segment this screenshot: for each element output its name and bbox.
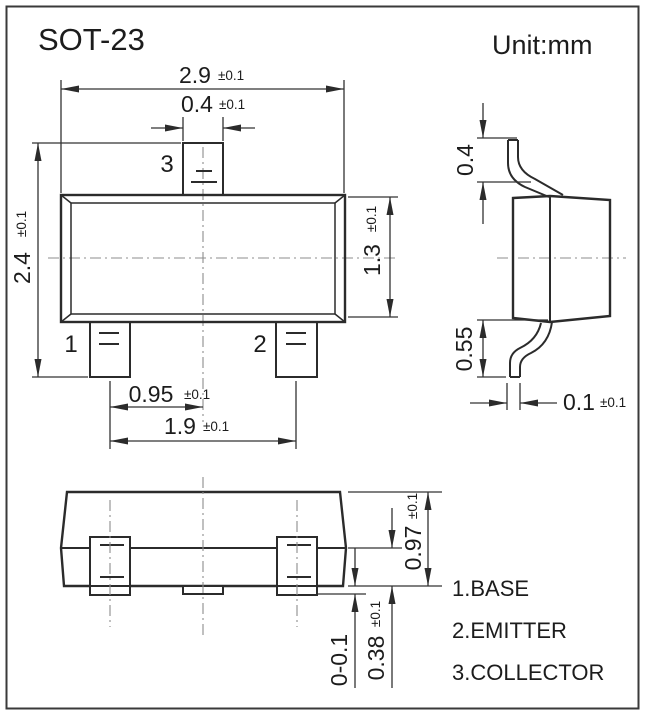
pin2-outline: [276, 322, 317, 377]
arrowhead-left: [110, 404, 128, 411]
dim-pin-span-value: 1.9: [164, 413, 196, 439]
arrowhead-right: [520, 400, 538, 407]
arrowhead-left: [489, 400, 507, 407]
unit-label: Unit:mm: [492, 30, 593, 60]
arrowhead-top: [387, 197, 394, 215]
pin1-outline: [90, 322, 130, 377]
package-body-side: [513, 196, 610, 322]
dim-body-thickness: 0.97 ±0.1: [348, 492, 442, 586]
dim-lead-profile-height-tolerance: ±0.1: [368, 601, 383, 627]
dimension-lines: [32, 143, 181, 377]
page-border: [7, 7, 639, 709]
dim-lead-bottom-height: 0.55: [451, 320, 548, 377]
dim-body-width-value: 2.9: [179, 62, 211, 88]
arrowhead-top: [425, 492, 432, 510]
pin-legend: 1.BASE 2.EMITTER 3.COLLECTOR: [452, 576, 604, 685]
body-outline: [513, 196, 610, 322]
page-title: SOT-23: [38, 22, 145, 57]
arrowhead-right: [278, 438, 296, 445]
dim-lead-profile-height: 0.38 ±0.1: [348, 508, 402, 688]
arrowhead-right: [223, 125, 241, 132]
gull-wing-lead-bottom: [510, 322, 552, 377]
gull-wing-lead-top: [508, 140, 563, 197]
dim-pin3-width-value: 0.4: [181, 91, 213, 117]
legend-item-emitter: 2.EMITTER: [452, 618, 567, 643]
pin1-number-label: 1: [64, 331, 77, 358]
arrowhead-left: [110, 438, 128, 445]
arrowhead-bottom: [389, 586, 396, 604]
sot23-outline-drawing: SOT-23 Unit:mm 3 1 2: [0, 0, 645, 715]
bottom-view: 0.97 ±0.1 0.38 ±0.1 0-0.1: [61, 477, 442, 688]
arrowhead-bottom: [480, 359, 487, 377]
dim-body-thickness-value: 0.97: [400, 526, 426, 571]
front-view: 3 1 2 2.9 ±0.1 0.4 ±0.1 2.4 ±0.1: [9, 62, 398, 449]
arrowhead-top: [389, 530, 396, 548]
side-view: 0.4 0.55 0.1 ±0.1: [451, 103, 626, 415]
pin-2-front: [276, 322, 317, 377]
arrowhead-top: [480, 120, 487, 138]
dim-body-width-tolerance: ±0.1: [218, 68, 244, 83]
arrowhead-bottom: [480, 182, 487, 200]
dim-overall-height-tolerance: ±0.1: [14, 211, 29, 237]
dim-body-height-value: 1.3: [359, 244, 385, 276]
lead-right-edge: [520, 322, 552, 377]
dim-body-thickness-tolerance: ±0.1: [405, 493, 420, 519]
drawing-page: SOT-23 Unit:mm 3 1 2: [0, 0, 645, 715]
arrowhead-top: [352, 568, 359, 586]
arrowhead-bottom: [352, 594, 359, 612]
dim-overall-height-value: 2.4: [9, 252, 35, 284]
pin1-bend-marks: [99, 333, 119, 344]
dimension-lines: [470, 383, 557, 410]
arrowhead-right: [326, 86, 344, 93]
dim-pin-span-tolerance: ±0.1: [203, 419, 229, 434]
arrowhead-bottom: [387, 299, 394, 317]
dim-pin3-width-tolerance: ±0.1: [219, 97, 245, 112]
arrowhead-bottom: [35, 359, 42, 377]
dim-body-height: 1.3 ±0.1: [348, 197, 398, 317]
dim-lead-bottom-height-value: 0.55: [451, 327, 477, 372]
dim-lead-thickness-value: 0.1: [563, 389, 595, 415]
pin-1-front: [90, 322, 130, 377]
legend-item-collector: 3.COLLECTOR: [452, 660, 604, 685]
dim-body-height-tolerance: ±0.1: [364, 206, 379, 232]
dim-lead-top-height-value: 0.4: [452, 144, 478, 176]
dim-lead-thickness-tolerance: ±0.1: [600, 395, 626, 410]
dim-overall-height: 2.4 ±0.1: [9, 143, 181, 377]
arrowhead-right: [185, 404, 203, 411]
dim-standoff: 0-0.1: [318, 548, 366, 688]
arrowhead-top: [35, 143, 42, 161]
pin2-number-label: 2: [253, 331, 266, 358]
dim-pin-pitch-value: 0.95: [129, 381, 174, 407]
arrowhead-left: [61, 86, 79, 93]
pin3-number-label: 3: [160, 151, 173, 178]
dim-pin-pitch-tolerance: ±0.1: [184, 387, 210, 402]
arrowhead-left: [165, 125, 183, 132]
dim-standoff-value: 0-0.1: [326, 634, 352, 686]
arrowhead-top: [480, 320, 487, 338]
dim-lead-profile-height-value: 0.38: [363, 636, 389, 681]
pin2-bend-marks: [286, 333, 306, 344]
dim-pin3-width: 0.4 ±0.1: [151, 91, 255, 141]
pin3-bend-marks: [191, 171, 217, 182]
lead-left-edge: [508, 140, 549, 197]
dim-lead-thickness: 0.1 ±0.1: [470, 383, 626, 415]
legend-item-base: 1.BASE: [452, 576, 529, 601]
